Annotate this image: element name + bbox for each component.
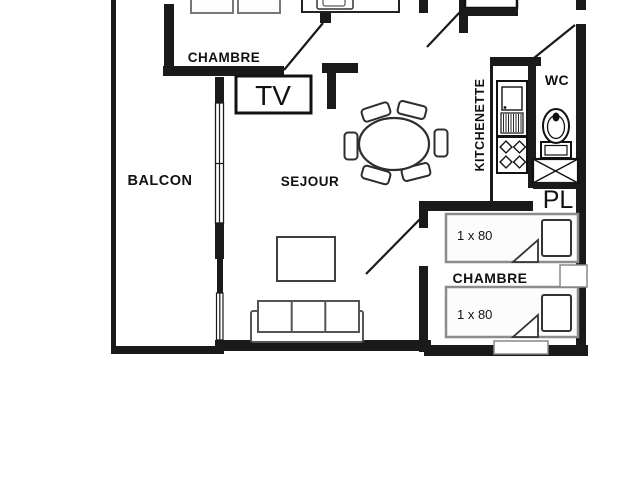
bedroom-bottom-label: CHAMBRE bbox=[452, 270, 527, 286]
toilet-hinge bbox=[553, 113, 560, 122]
hall-wall-stub bbox=[327, 73, 336, 109]
right-exterior-wall-top bbox=[576, 0, 586, 10]
kitchenette-counter-edge bbox=[490, 66, 493, 207]
bedroom-top-label: CHAMBRE bbox=[188, 50, 261, 65]
wc-label: WC bbox=[545, 72, 569, 88]
wall-stub bbox=[419, 0, 428, 13]
entry-wall bbox=[461, 8, 518, 16]
bedroom-bottom: 1 x 80 CHAMBRE 1 x 80 bbox=[419, 201, 588, 356]
bedroom-bottom-top-wall bbox=[419, 201, 533, 211]
kitchenette: KITCHENETTE bbox=[473, 57, 541, 207]
chair bbox=[345, 133, 358, 160]
balcony-label: BALCON bbox=[127, 173, 192, 189]
sofa-cushions bbox=[258, 301, 359, 332]
pillow bbox=[542, 220, 571, 256]
floor-plan: BALCON CHAMBRE bbox=[0, 0, 640, 480]
window-bottom bbox=[494, 341, 548, 354]
bed-cutoff bbox=[191, 0, 233, 13]
tv-label: TV bbox=[255, 80, 291, 111]
shower-tray bbox=[533, 159, 578, 183]
washbasin-bowl bbox=[323, 0, 345, 6]
bathroom-door-leaf bbox=[427, 12, 460, 47]
chair bbox=[435, 130, 448, 157]
bed-size-label: 1 x 80 bbox=[457, 228, 492, 243]
closet: PL bbox=[543, 186, 574, 214]
bedroom-bottom-left-wall bbox=[419, 266, 428, 352]
bed-size-label: 1 x 80 bbox=[457, 307, 492, 322]
chair bbox=[397, 100, 427, 119]
fridge-vent bbox=[501, 113, 523, 133]
balcony-bottom-wall bbox=[111, 346, 224, 354]
bed-cutoff bbox=[238, 0, 280, 13]
toilet-tank-inner bbox=[545, 146, 567, 156]
toilet bbox=[541, 109, 571, 158]
kitchenette-label: KITCHENETTE bbox=[473, 79, 487, 172]
fridge bbox=[497, 81, 527, 136]
bed-bottom: 1 x 80 bbox=[446, 287, 578, 337]
balcony-railing bbox=[111, 0, 116, 353]
coffee-table bbox=[277, 237, 335, 281]
stove-outline bbox=[497, 137, 527, 173]
floor-plan-drawing: BALCON CHAMBRE bbox=[0, 0, 640, 480]
bed-top: 1 x 80 bbox=[446, 214, 578, 262]
bedroom-top-left-wall bbox=[164, 4, 174, 74]
bedroom-bottom-left-wall bbox=[419, 201, 428, 228]
living-room: SEJOUR TV bbox=[215, 76, 448, 351]
bedroom-top-door-leaf bbox=[284, 23, 323, 70]
living-room-label: SEJOUR bbox=[281, 174, 340, 189]
entry-door-leaf bbox=[534, 25, 575, 58]
tv-unit: TV bbox=[236, 76, 311, 113]
facade-wall-segment bbox=[217, 259, 223, 293]
stove bbox=[497, 137, 527, 173]
bathroom-top bbox=[302, 0, 518, 47]
pillow bbox=[542, 295, 571, 331]
balcony-window-lower bbox=[217, 293, 224, 340]
sofa bbox=[251, 301, 363, 342]
entry-cabinet bbox=[465, 0, 517, 8]
wc: WC bbox=[533, 72, 578, 189]
closet-label: PL bbox=[543, 186, 574, 214]
balcony-window bbox=[216, 103, 224, 223]
hall-wall bbox=[322, 63, 358, 73]
facade-wall bbox=[215, 77, 224, 340]
dining-table bbox=[359, 118, 429, 170]
bedroom-bottom-door-leaf bbox=[366, 214, 425, 274]
washbasin-icon bbox=[317, 0, 353, 9]
facade-wall-segment bbox=[215, 77, 224, 103]
window-side bbox=[560, 265, 587, 287]
facade-wall-segment bbox=[215, 223, 224, 259]
fridge-handle bbox=[504, 106, 507, 109]
